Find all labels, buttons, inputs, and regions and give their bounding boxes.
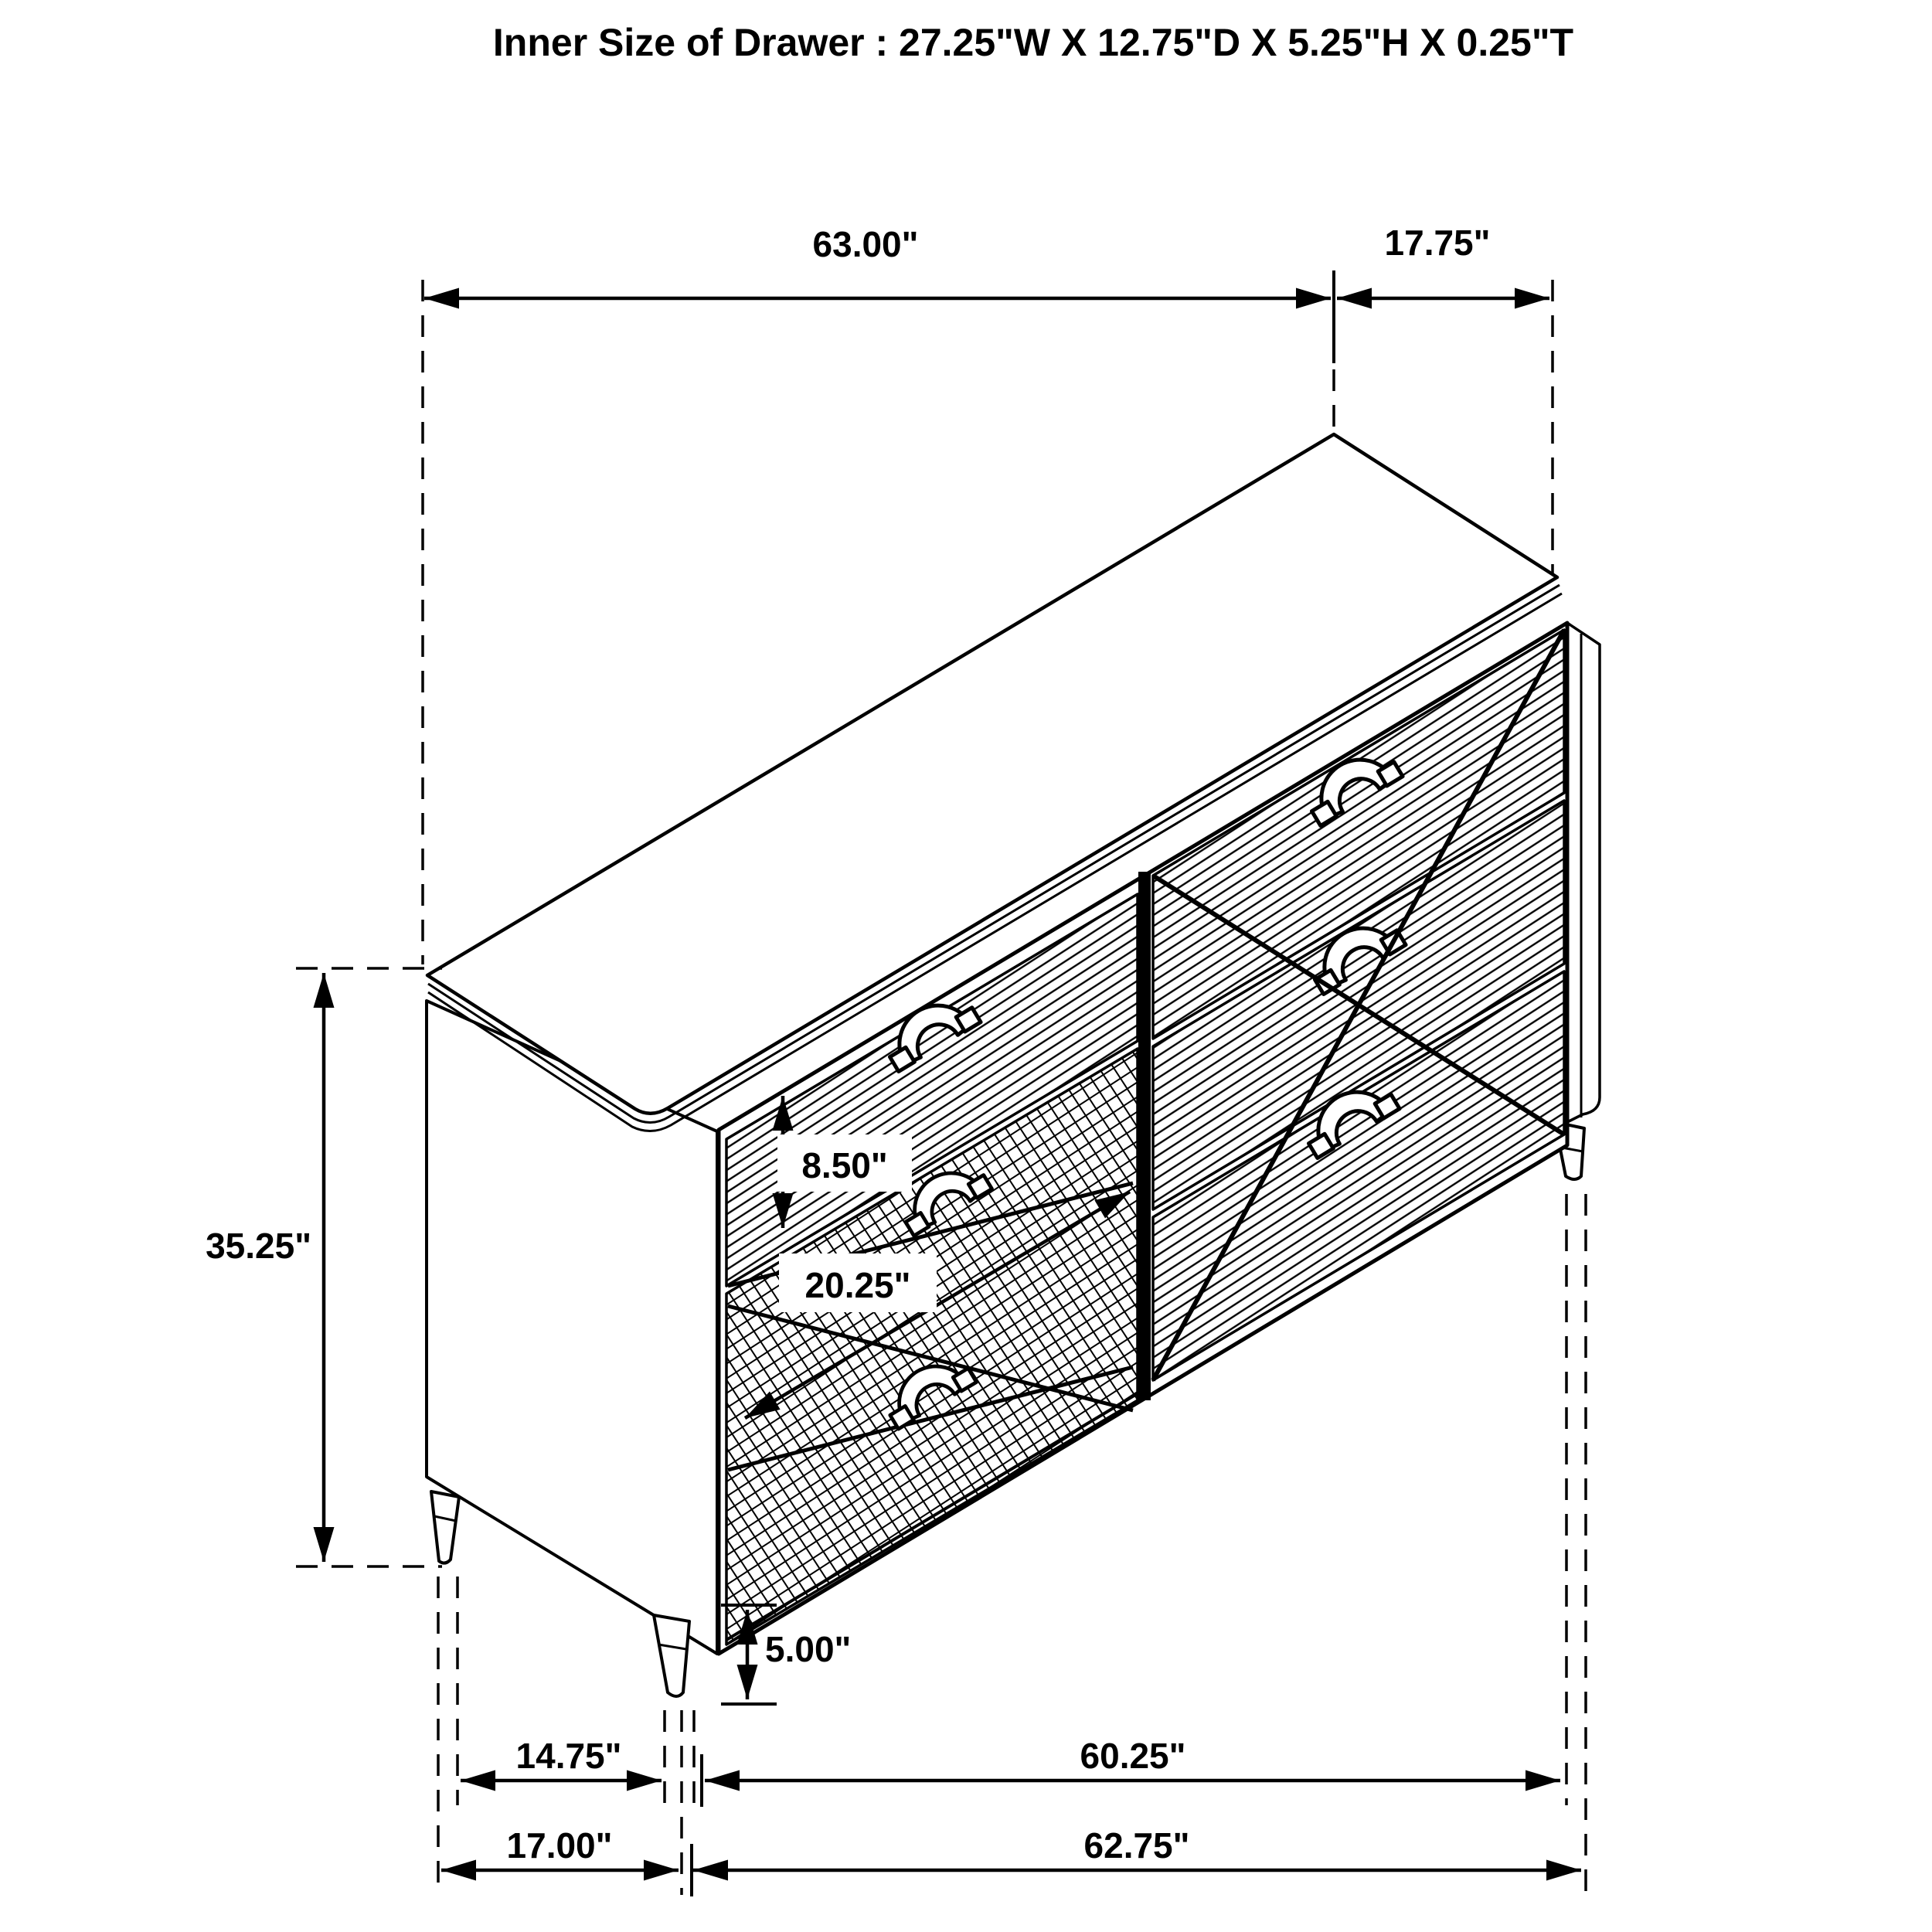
leg-front-center bbox=[654, 1615, 689, 1696]
dim-overall-height: 35.25" bbox=[206, 973, 324, 1562]
dim-base-width: 62.75" bbox=[693, 1825, 1581, 1870]
dim-label: 60.25" bbox=[1080, 1736, 1186, 1776]
dim-label: 17.00" bbox=[507, 1825, 613, 1866]
figure-title: Inner Size of Drawer : 27.25"W X 12.75"D… bbox=[493, 21, 1573, 64]
dim-label: 63.00" bbox=[813, 224, 919, 264]
dim-foot-inset: 14.75" bbox=[461, 1736, 662, 1781]
dim-foot-span: 60.25" bbox=[705, 1736, 1560, 1781]
dim-label: 17.75" bbox=[1385, 223, 1491, 263]
dim-label: 62.75" bbox=[1084, 1825, 1190, 1866]
dim-base-depth: 17.00" bbox=[441, 1825, 679, 1870]
leg-back-left bbox=[431, 1492, 459, 1563]
dim-label: 5.00" bbox=[765, 1629, 851, 1669]
dim-top-width: 63.00" bbox=[424, 224, 1331, 298]
dresser-drawing bbox=[427, 434, 1600, 1696]
dim-label: 20.25" bbox=[805, 1265, 911, 1305]
dim-label: 35.25" bbox=[206, 1226, 311, 1266]
dim-top-depth: 17.75" bbox=[1337, 223, 1549, 298]
right-side-panel bbox=[1567, 623, 1600, 1122]
dimension-diagram-page: 63.00" 17.75" 35.25" 8.50" 20.25" bbox=[0, 0, 1932, 1932]
dim-label: 14.75" bbox=[516, 1736, 622, 1776]
dresser-dimension-diagram: 63.00" 17.75" 35.25" 8.50" 20.25" bbox=[0, 0, 1932, 1932]
dim-label: 8.50" bbox=[801, 1145, 887, 1185]
